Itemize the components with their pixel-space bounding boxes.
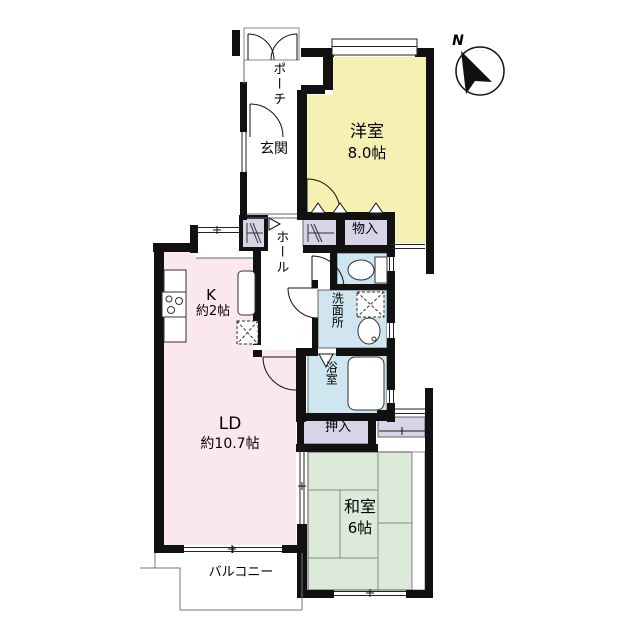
living-dining-size: 約10.7帖	[185, 437, 275, 452]
hall-label: ホール	[273, 230, 287, 275]
japanese-room-label: 和室	[329, 498, 391, 516]
compass	[456, 47, 504, 95]
wash-basin	[358, 318, 380, 344]
washroom-door-arc	[288, 288, 318, 318]
toilet-tank	[375, 257, 387, 283]
balcony-label: バルコニー	[195, 566, 287, 580]
bathtub	[348, 357, 384, 410]
japanese-room-edge-strip	[412, 452, 425, 590]
entrance-label: 玄関	[246, 142, 302, 157]
washroom-label: 洗面所	[330, 292, 343, 328]
porch-label: ポーチ	[270, 62, 284, 107]
western-room-label: 洋室	[317, 123, 417, 142]
hall-closet-door-mark	[269, 218, 280, 230]
floor-plan: ポーチ 玄関 洋室 8.0帖 ホール 物入 洗面所 浴室 K 約2帖 LD 約1…	[0, 0, 640, 640]
kitchen-label: K	[186, 287, 236, 304]
kitchen-size: 約2帖	[180, 305, 246, 319]
floor-plan-drawing	[0, 0, 640, 640]
japanese-room-size: 6帖	[334, 520, 386, 537]
storage-label: 物入	[340, 223, 390, 237]
porch-gate-left-arc	[248, 34, 274, 60]
living-dining-label: LD	[200, 415, 260, 434]
western-room-size: 8.0帖	[317, 145, 417, 162]
oshiire-label: 押入	[310, 421, 366, 435]
entrance-door-arc	[250, 104, 283, 137]
compass-north-label: N	[448, 34, 468, 49]
porch-gate-right-arc	[271, 34, 297, 60]
toilet-bowl	[348, 260, 374, 280]
bathroom-label: 浴室	[324, 361, 337, 385]
